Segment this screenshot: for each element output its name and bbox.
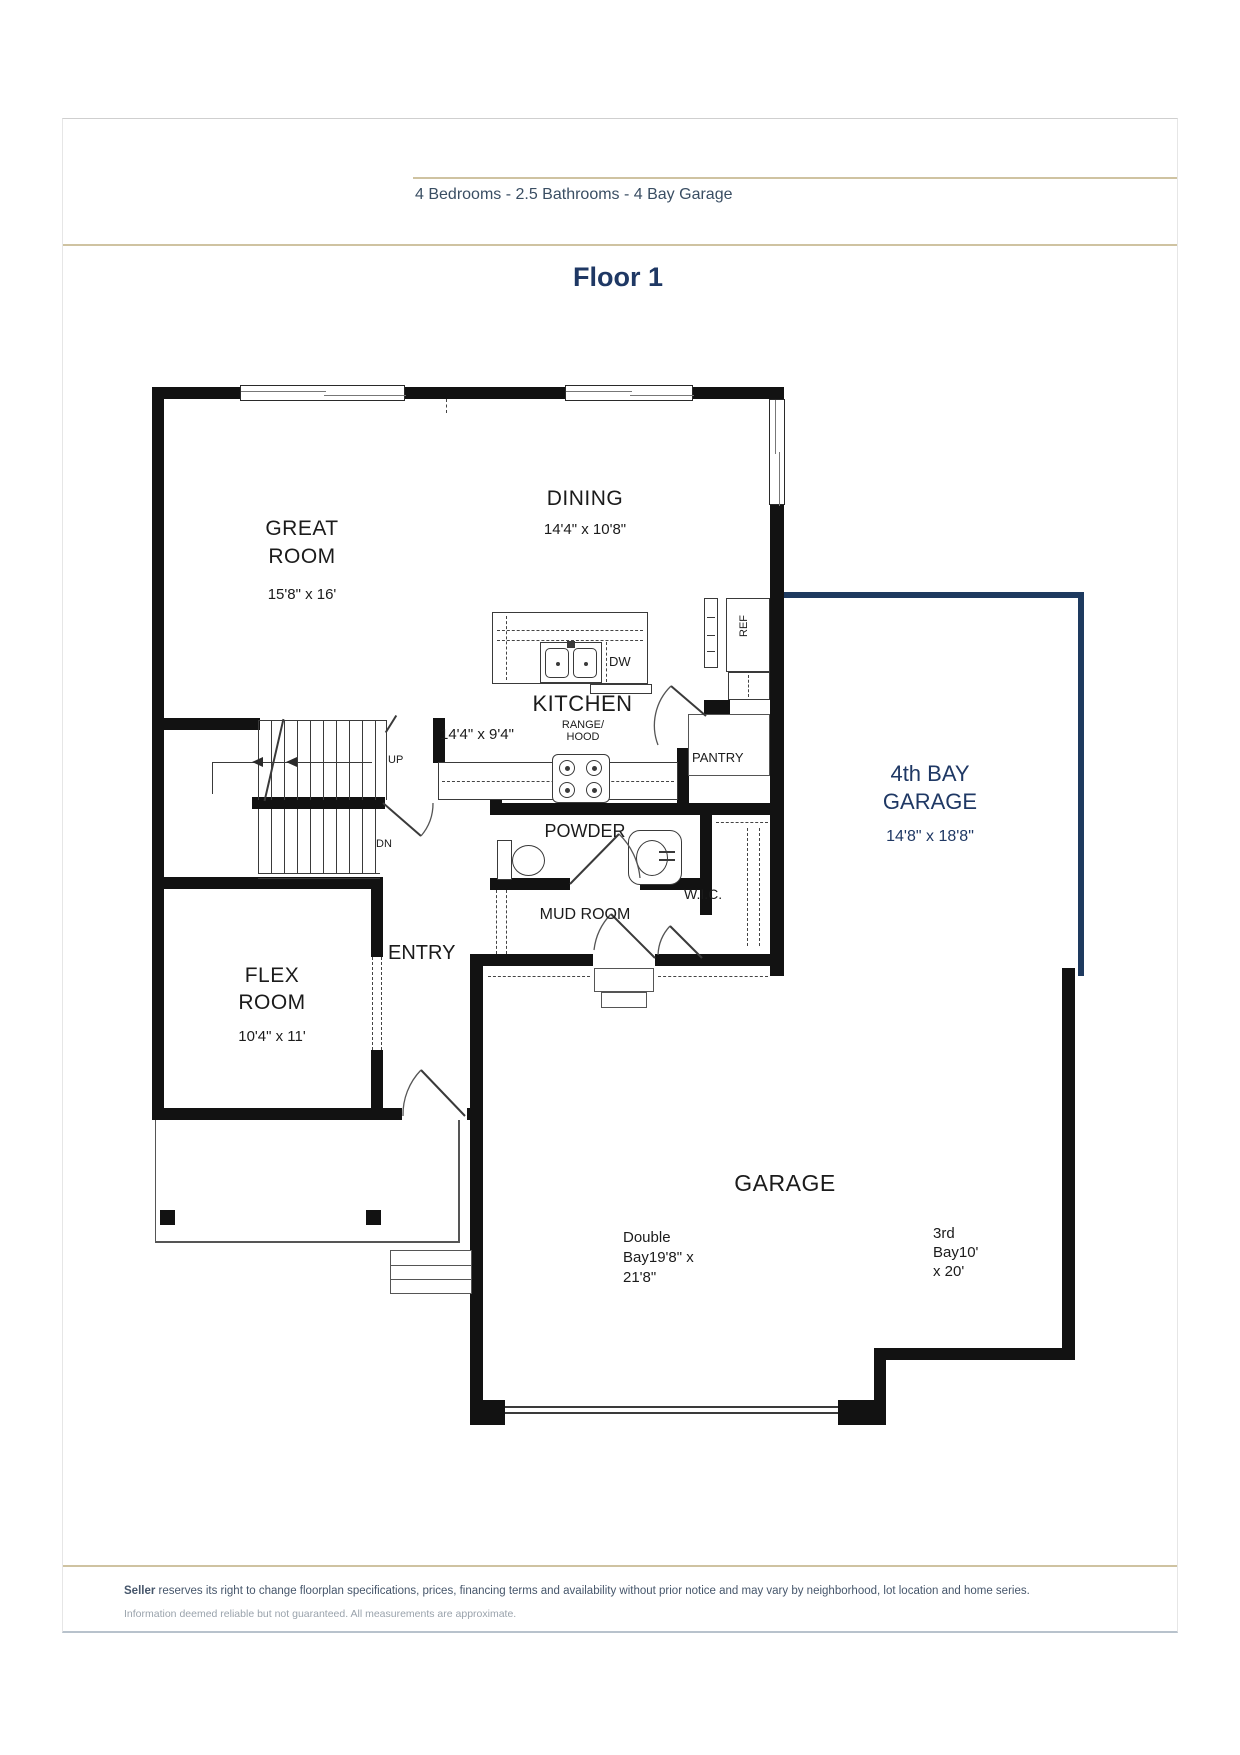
wall-garage-left bbox=[470, 954, 483, 1425]
pantry-outline bbox=[688, 714, 770, 776]
window-great-room bbox=[240, 385, 405, 401]
wall-garage-notch-vertical bbox=[874, 1352, 886, 1425]
garage-beam-dash-left bbox=[488, 976, 590, 977]
footer-disclaimer-rest: reserves its right to change floorplan s… bbox=[159, 1585, 1030, 1597]
garage-label: GARAGE bbox=[700, 1170, 870, 1197]
cased-opening-mud-left bbox=[496, 890, 497, 954]
cased-opening-flex-left bbox=[372, 957, 373, 1050]
dining-dims: 14'4" x 10'8" bbox=[505, 521, 665, 538]
kitchen-dims: 14'4" x 9'4" bbox=[440, 726, 514, 743]
window-dining-top bbox=[565, 385, 693, 401]
wall-garage-door-stub-left bbox=[470, 1400, 505, 1425]
wic-shelf-dash bbox=[716, 822, 768, 823]
porch-steps bbox=[390, 1250, 472, 1294]
third-bay-dims: 3rdBay10'x 20' bbox=[933, 1224, 1013, 1281]
sink-basin-right bbox=[573, 648, 597, 678]
island-dash-1 bbox=[497, 630, 643, 631]
stairs-up-label: UP bbox=[388, 754, 403, 766]
porch-right-edge bbox=[458, 1120, 460, 1243]
stairs-down-label: DN bbox=[376, 838, 392, 850]
footer-disclaimer-lead: Seller bbox=[124, 1585, 155, 1597]
wall-mud-bottom bbox=[483, 954, 593, 966]
sink-faucet-icon bbox=[567, 641, 575, 648]
cased-opening-mud-right bbox=[506, 890, 507, 954]
fourth-bay-outline-top bbox=[784, 592, 1084, 598]
porch-post-left bbox=[160, 1210, 175, 1225]
refrigerator-label: REF bbox=[738, 615, 750, 637]
window-dining-right bbox=[769, 399, 785, 505]
oven-cabinet bbox=[704, 598, 718, 668]
range-hood-label: RANGE/HOOD bbox=[545, 719, 621, 743]
wall-flex-right-lower bbox=[371, 1050, 383, 1120]
wall-wic-bottom bbox=[655, 954, 784, 966]
porch-bottom-edge bbox=[155, 1241, 460, 1243]
footer-rule bbox=[63, 1565, 1177, 1567]
double-bay-dims: DoubleBay19'8" x21'8" bbox=[623, 1228, 733, 1288]
dining-label: DINING bbox=[505, 487, 665, 511]
kitchen-label: KITCHEN bbox=[500, 691, 665, 717]
wall-garage-right bbox=[1062, 968, 1075, 1360]
stairs-down-flight bbox=[258, 809, 380, 873]
great-room-dims: 15'8" x 16' bbox=[222, 586, 382, 603]
wall-powder-top bbox=[490, 803, 770, 815]
stairs-bottom-line-1 bbox=[258, 873, 380, 874]
island-dash-dw bbox=[606, 642, 607, 682]
garage-door-line-inner bbox=[505, 1412, 838, 1414]
footer-disclaimer-1: Seller reserves its right to change floo… bbox=[124, 1585, 1124, 1597]
cased-opening-flex-right bbox=[381, 957, 382, 1050]
garage-beam-dash-right bbox=[658, 976, 768, 977]
pantry-label: PANTRY bbox=[692, 750, 744, 765]
wall-stair-landing bbox=[164, 718, 260, 730]
flex-room-dims: 10'4" x 11' bbox=[192, 1028, 352, 1045]
garage-steps-lower bbox=[601, 992, 647, 1008]
range-stove bbox=[552, 754, 610, 803]
footer-disclaimer-2: Information deemed reliable but not guar… bbox=[124, 1608, 1124, 1620]
mud-room-label: MUD ROOM bbox=[510, 906, 660, 924]
great-room-label: GREATROOM bbox=[222, 515, 382, 571]
porch-left-edge bbox=[155, 1120, 156, 1243]
wic-rod-dash-2 bbox=[759, 828, 760, 946]
dishwasher-label: DW bbox=[609, 654, 631, 669]
powder-label: POWDER bbox=[510, 821, 660, 842]
floorplan-page: { "header": { "summary": "4 Bedrooms - 2… bbox=[0, 0, 1240, 1755]
garage-door-line-outer bbox=[505, 1406, 838, 1408]
wall-garage-notch-horizontal bbox=[874, 1348, 1075, 1360]
porch-post-right bbox=[366, 1210, 381, 1225]
stairs-arrow-elbow bbox=[212, 762, 213, 794]
wic-rod-dash-1 bbox=[747, 828, 748, 946]
toilet-tank bbox=[497, 840, 512, 880]
stairs-up-flight bbox=[258, 720, 387, 800]
toilet-bowl bbox=[512, 845, 545, 876]
flex-room-label: FLEXROOM bbox=[192, 962, 352, 1016]
fourth-bay-dims: 14'8" x 18'8" bbox=[830, 828, 1030, 846]
garage-steps-upper bbox=[594, 968, 654, 992]
stairs-arrowhead-2-icon bbox=[286, 757, 297, 767]
entry-label: ENTRY bbox=[388, 942, 455, 965]
wic-label: W.I.C. bbox=[684, 886, 722, 902]
sink-basin-left bbox=[545, 648, 569, 678]
cabinet-below-ref bbox=[728, 672, 770, 700]
fourth-bay-outline-right bbox=[1078, 592, 1084, 976]
fourth-bay-label: 4th BAYGARAGE bbox=[830, 760, 1030, 816]
wall-break-tick bbox=[446, 399, 447, 413]
floorplan-drawing: DW REF UP DN bbox=[0, 0, 1240, 1755]
stairs-bottom-line-2 bbox=[258, 878, 380, 879]
wall-flex-bottom bbox=[152, 1108, 402, 1120]
wall-flex-right-upper bbox=[371, 877, 383, 957]
island-dash-left bbox=[506, 616, 507, 680]
wall-left bbox=[152, 387, 164, 1120]
stairs-arrowhead-1-icon bbox=[252, 757, 263, 767]
